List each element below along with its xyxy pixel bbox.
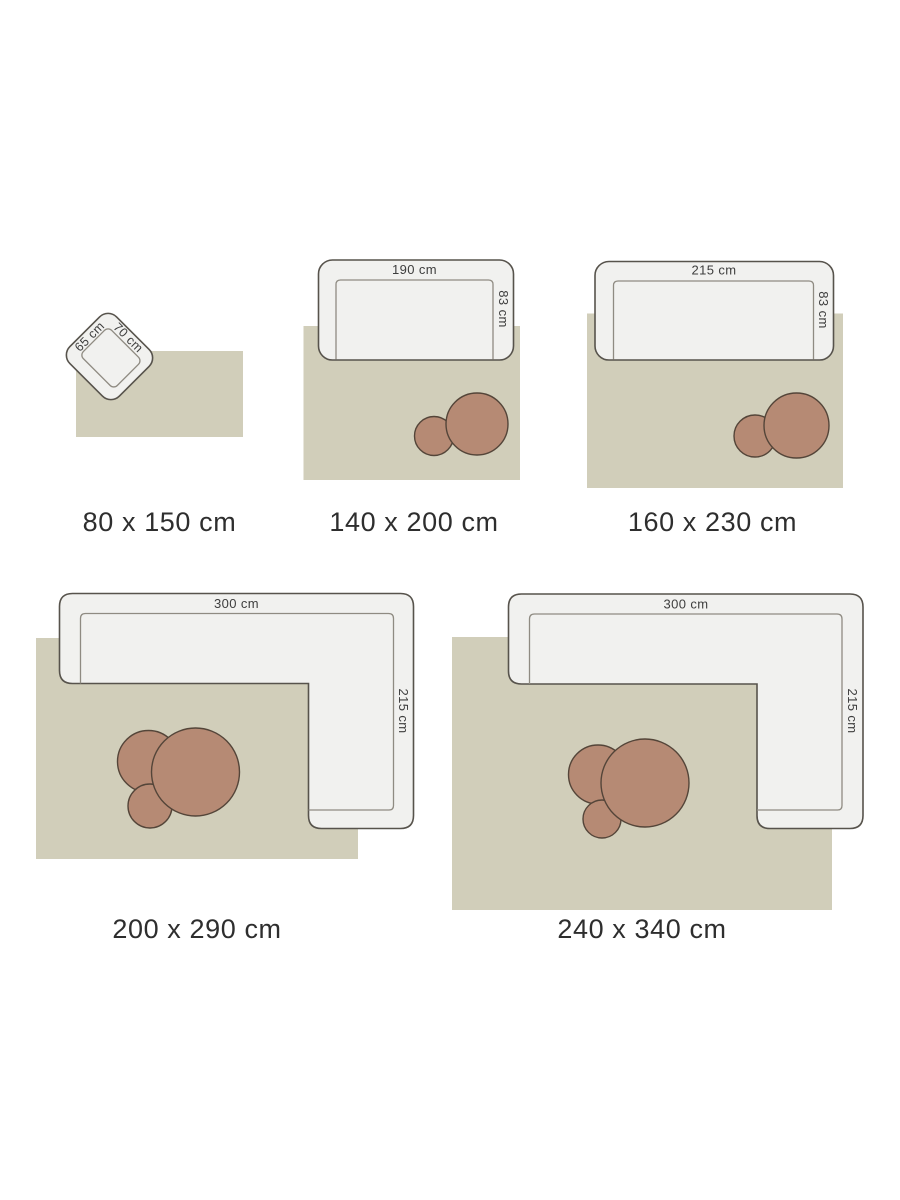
size-diagram-240x340: 300 cm 215 cm 240 x 340 cm	[452, 594, 863, 944]
pouf-large	[152, 728, 240, 816]
pouf-large	[601, 739, 689, 827]
rug-size-label: 80 x 150 cm	[83, 507, 237, 537]
furniture-depth-label: 215 cm	[396, 688, 411, 733]
rug-size-label: 200 x 290 cm	[112, 914, 281, 944]
rug-size-label: 240 x 340 cm	[557, 914, 726, 944]
size-diagram-200x290: 300 cm 215 cm 200 x 290 cm	[36, 594, 414, 945]
rug-size-guide-figure: 65 cm 70 cm 80 x 150 cm 190 cm 83 cm 140…	[0, 0, 900, 1200]
pouf-large	[446, 393, 508, 455]
furniture-depth-label: 83 cm	[816, 291, 831, 328]
size-diagram-140x200: 190 cm 83 cm 140 x 200 cm	[304, 260, 521, 537]
furniture-width-label: 190 cm	[392, 262, 437, 277]
sofa: 190 cm 83 cm	[319, 260, 514, 360]
size-diagram-80x150: 65 cm 70 cm 80 x 150 cm	[61, 308, 243, 537]
pouf-large	[764, 393, 829, 458]
furniture-width-label: 300 cm	[214, 596, 259, 611]
size-diagram-160x230: 215 cm 83 cm 160 x 230 cm	[587, 262, 843, 538]
furniture-depth-label: 83 cm	[496, 290, 511, 327]
furniture-width-label: 215 cm	[691, 263, 736, 278]
sofa: 215 cm 83 cm	[595, 262, 834, 361]
furniture-width-label: 300 cm	[663, 597, 708, 612]
rug-size-label: 160 x 230 cm	[628, 507, 797, 537]
furniture-depth-label: 215 cm	[845, 688, 860, 733]
rug-size-label: 140 x 200 cm	[329, 507, 498, 537]
